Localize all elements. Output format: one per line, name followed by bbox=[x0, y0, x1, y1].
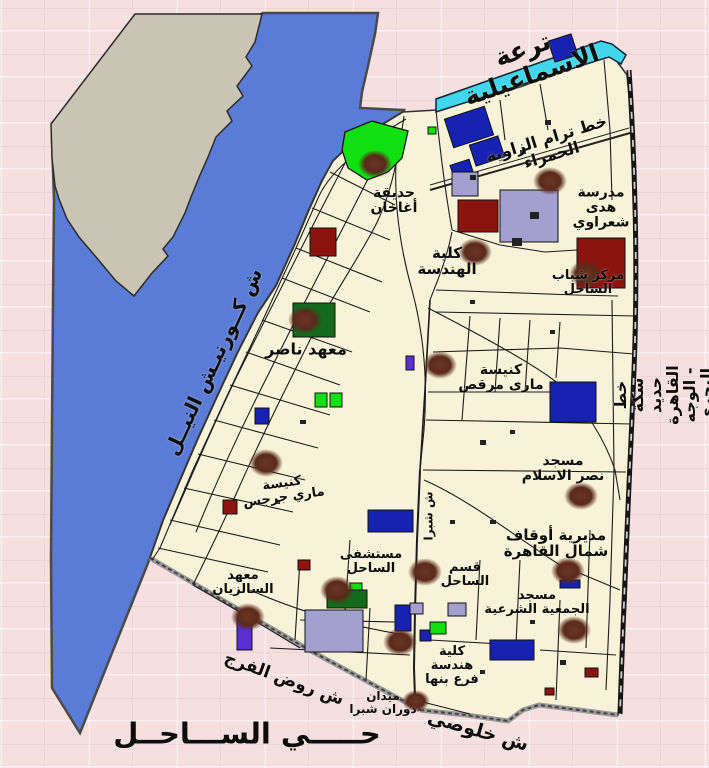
landmark-mari-morcos-church bbox=[423, 351, 457, 379]
landmark-hoda-shaarawy-school bbox=[533, 167, 567, 195]
landmark-sahel-police-station bbox=[408, 558, 442, 586]
landmark-salesian-institute bbox=[231, 603, 265, 631]
landmark-shubra-roundabout bbox=[402, 690, 430, 712]
landmark-faculty-engineering bbox=[458, 238, 492, 266]
landmark-mari-girgis-church bbox=[249, 449, 283, 477]
map-canvas bbox=[0, 0, 709, 768]
landmark-nasser-institute bbox=[288, 306, 322, 334]
landmark-sahel-hospital bbox=[320, 576, 354, 604]
landmark-aga-khan-garden bbox=[358, 150, 392, 178]
landmark-benha-engineering-faculty bbox=[383, 628, 417, 656]
landmark-gamiya-sharia-mosque bbox=[557, 616, 591, 644]
landmark-nasr-islam-mosque bbox=[564, 482, 598, 510]
landmark-awqaf-directorate bbox=[551, 557, 585, 585]
landmark-sahel-youth-center bbox=[569, 260, 603, 288]
sahel-district-map: ترعة الاسماعيليةخط ترام الزاوية الحمراءم… bbox=[0, 0, 709, 768]
